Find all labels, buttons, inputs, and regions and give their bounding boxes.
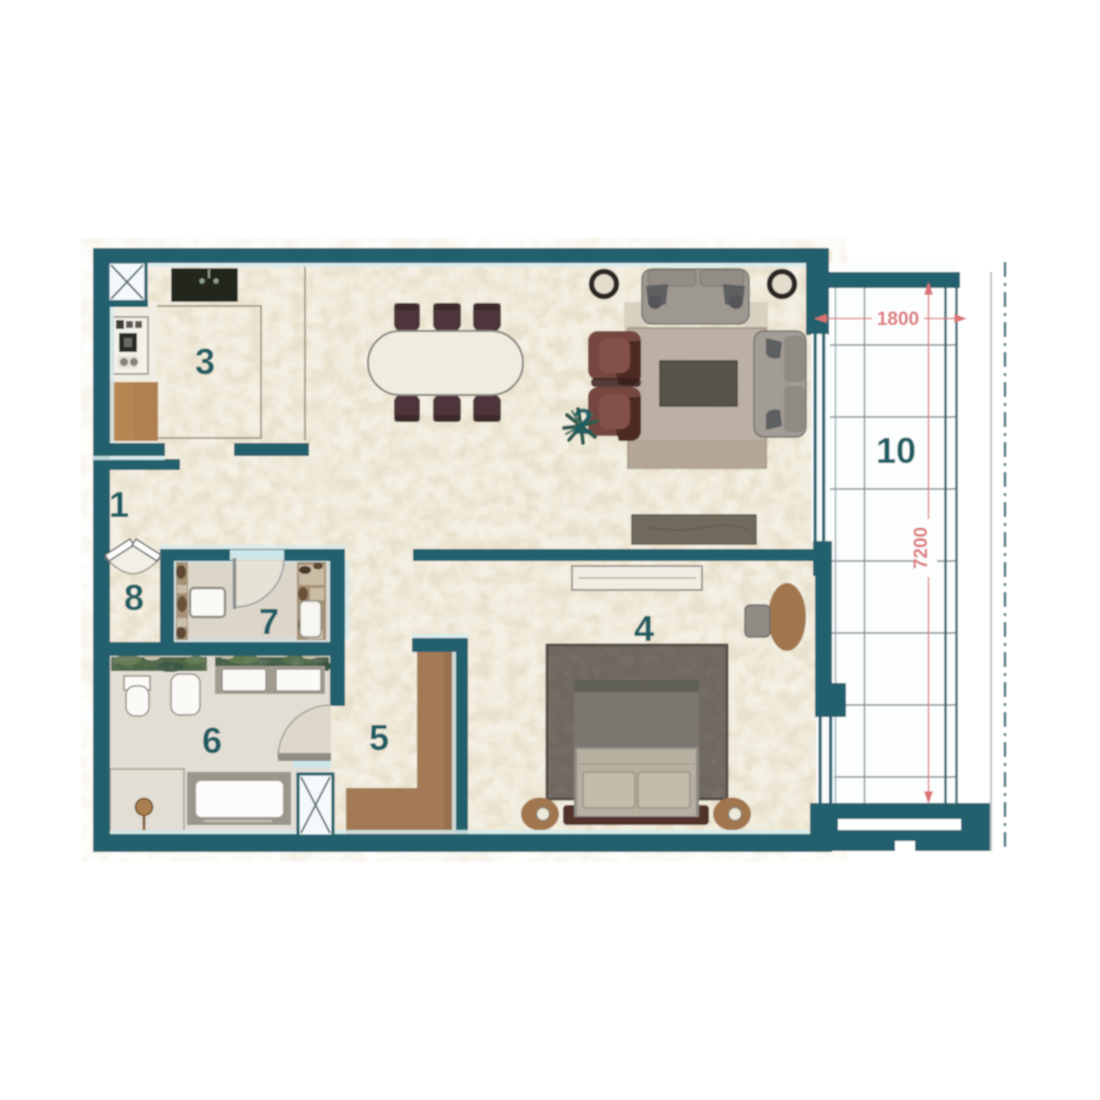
svg-text:2: 2 bbox=[573, 401, 593, 442]
svg-text:5: 5 bbox=[369, 717, 389, 758]
svg-text:6: 6 bbox=[202, 720, 222, 761]
svg-text:8: 8 bbox=[124, 577, 144, 618]
svg-text:7: 7 bbox=[259, 601, 279, 642]
svg-text:4: 4 bbox=[634, 608, 654, 649]
svg-text:3: 3 bbox=[195, 341, 215, 382]
svg-text:1: 1 bbox=[109, 484, 129, 525]
svg-text:10: 10 bbox=[876, 430, 916, 471]
svg-text:1800: 1800 bbox=[877, 309, 919, 330]
svg-text:7200: 7200 bbox=[911, 527, 932, 569]
